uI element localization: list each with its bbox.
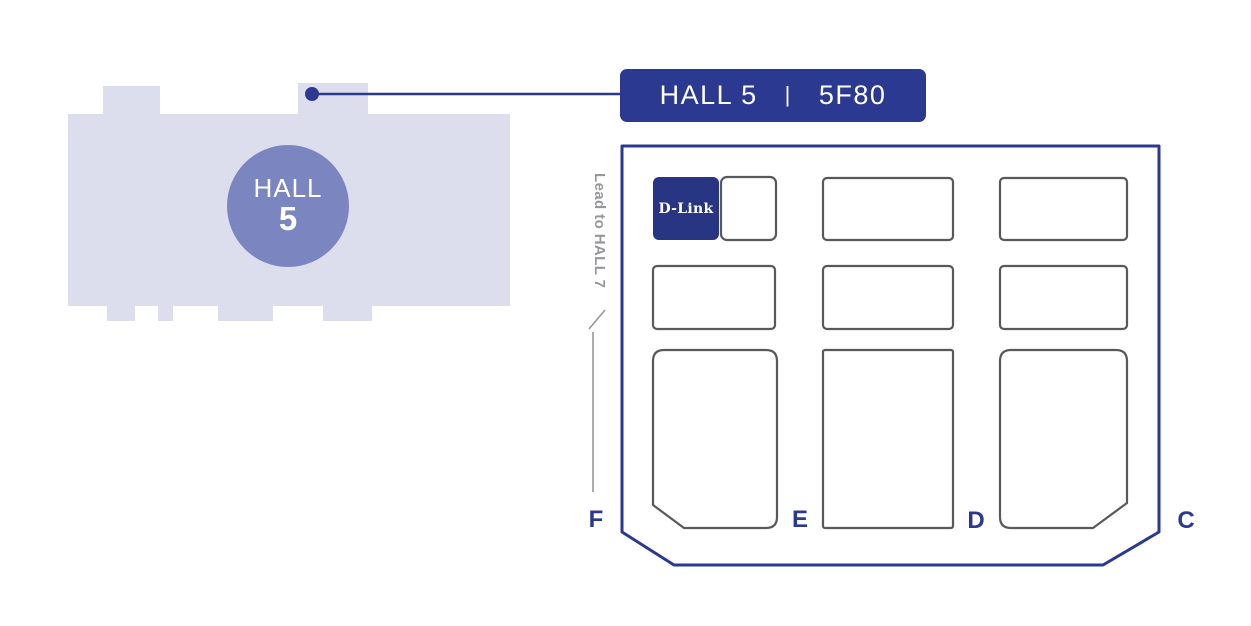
hall-word: HALL [253, 175, 322, 202]
booth-row1-col2 [823, 178, 953, 240]
booth-callout-banner: HALL 5 | 5F80 [620, 69, 926, 122]
lead-direction-slash [589, 310, 605, 329]
callout-hall-text: HALL 5 [660, 80, 758, 111]
booth-row3-col2 [823, 350, 953, 528]
dlink-logo: D-Link [658, 201, 713, 217]
callout-booth-text: 5F80 [819, 80, 887, 111]
hall5-circle-badge: HALL 5 [227, 145, 349, 267]
lead-to-hall7-label: Lead to HALL 7 [591, 173, 608, 288]
booth-location-map: HALL 5 HALL 5 | 5F80 D-Link Lead to HALL… [0, 0, 1251, 626]
aisle-label-e: E [792, 506, 808, 534]
callout-separator: | [785, 82, 792, 108]
hall-number: 5 [279, 202, 297, 237]
callout-anchor-dot [305, 87, 319, 101]
aisle-label-c: C [1177, 507, 1194, 535]
booth-row3-col3 [1000, 350, 1127, 528]
booth-row2-col2 [823, 266, 953, 329]
booth-row1-col3 [1000, 178, 1127, 240]
booth-row3-col1 [653, 350, 777, 528]
aisle-label-d: D [967, 507, 984, 535]
booth-row2-col3 [1000, 266, 1127, 329]
booth-row1-small [721, 177, 776, 240]
aisle-label-f: F [589, 506, 604, 534]
booth-row2-col1 [653, 266, 775, 329]
booth-highlight-dlink[interactable]: D-Link [653, 177, 719, 240]
